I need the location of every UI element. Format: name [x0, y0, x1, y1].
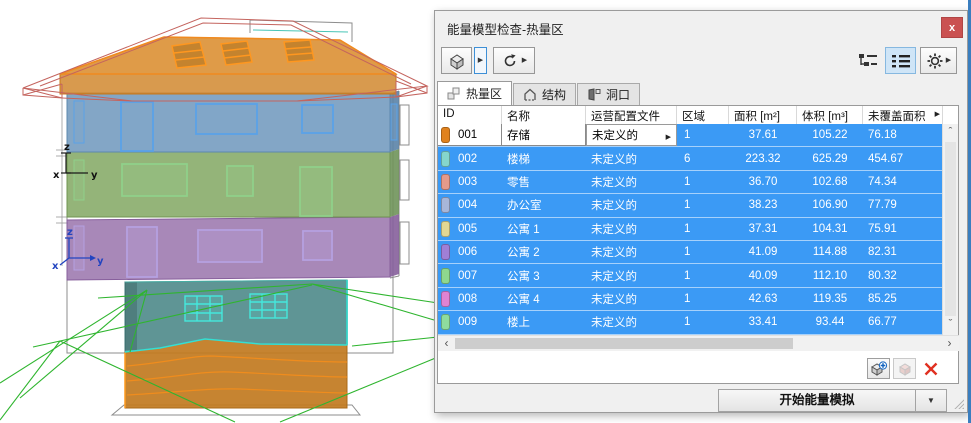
- zone-id: 002: [458, 153, 477, 165]
- zone-id-cell: 009: [438, 311, 502, 333]
- ground-floor-zone: [125, 280, 347, 352]
- zone-count-cell: 1: [677, 218, 729, 240]
- zone-id-cell: 004: [438, 194, 502, 216]
- zone-volume-cell: 119.35: [797, 288, 863, 310]
- zone-color-swatch: [441, 314, 450, 330]
- zone-uncovered-cell: 85.25: [863, 288, 943, 310]
- zone-id: 006: [458, 246, 477, 258]
- screen: z x y z x y 能量模型检查-热量区 x: [0, 0, 971, 423]
- zone-id-cell: 003: [438, 171, 502, 193]
- zone-profile-cell[interactable]: 未定义的 ▶: [586, 194, 677, 216]
- flyout-arrow-icon: ▶: [478, 57, 483, 64]
- zone-count-cell: 1: [677, 171, 729, 193]
- start-simulation-dropdown-button[interactable]: ▼: [916, 389, 947, 412]
- column-header-uncovered-label: 未覆盖面积: [868, 111, 926, 123]
- zone-id-cell: 007: [438, 264, 502, 286]
- settings-button[interactable]: ▶: [920, 47, 957, 74]
- tab-label: 洞口: [606, 86, 630, 103]
- table-header: ID 名称 运营配置文件 区域 面积 [m²] 体积 [m³] 未覆盖面积 ▶: [438, 106, 943, 124]
- thermal-block-table: 001 存储 未定义的 ▶ 1 37.61 105.22 76.18 002 楼…: [438, 124, 943, 335]
- zone-id-cell: 002: [438, 147, 502, 169]
- zone-uncovered-cell: 82.31: [863, 241, 943, 263]
- axis-y-label: y: [97, 256, 104, 267]
- column-header-area[interactable]: 面积 [m²]: [729, 106, 797, 124]
- zone-count-cell: 1: [677, 241, 729, 263]
- start-simulation-group: 开始能量模拟 ▼: [718, 389, 947, 412]
- zone-count-cell: 1: [677, 264, 729, 286]
- zone-volume-cell: 93.44: [797, 311, 863, 333]
- zone-uncovered-cell: 77.79: [863, 194, 943, 216]
- tab-label: 结构: [542, 86, 566, 103]
- zone-uncovered-cell: 75.91: [863, 218, 943, 240]
- zone-uncovered-cell: 80.32: [863, 264, 943, 286]
- zone-color-swatch: [441, 151, 450, 167]
- scroll-down-button[interactable]: ˇ: [943, 319, 958, 334]
- start-energy-simulation-button[interactable]: 开始能量模拟: [718, 389, 916, 412]
- flyout-arrow-icon: ▶: [946, 57, 951, 64]
- list-view-button[interactable]: [885, 47, 916, 74]
- table-row[interactable]: 004 办公室 未定义的 ▶ 1 38.23 106.90 77.79: [438, 194, 943, 217]
- axis-x-label: x: [52, 261, 59, 272]
- show-in-3d-button[interactable]: [441, 47, 472, 74]
- energy-model-review-dialog: 能量模型检查-热量区 x ▶ ▶: [434, 10, 968, 413]
- zone-id-cell: 008: [438, 288, 502, 310]
- zone-volume-cell: 102.68: [797, 171, 863, 193]
- delete-x-icon: [923, 361, 939, 377]
- zone-profile-cell[interactable]: 未定义的 ▶: [586, 147, 677, 169]
- tab-thermal-blocks[interactable]: 热量区: [437, 81, 512, 105]
- dialog-titlebar[interactable]: 能量模型检查-热量区 x: [435, 11, 967, 41]
- zone-id: 004: [458, 199, 477, 211]
- zone-color-swatch: [441, 291, 450, 307]
- zone-area-cell: 33.41: [729, 311, 797, 333]
- floor2-zone: [67, 149, 399, 217]
- zone-profile-cell[interactable]: 未定义的 ▶: [586, 171, 677, 193]
- zone-name: 零售: [507, 174, 530, 190]
- scroll-up-button[interactable]: ˆ: [943, 125, 958, 140]
- zone-name-cell: 公寓 2: [502, 241, 586, 263]
- zone-profile-cell[interactable]: 未定义的 ▶: [586, 218, 677, 240]
- zone-uncovered-cell: 76.18: [863, 124, 943, 146]
- zone-id: 008: [458, 293, 477, 305]
- zone-profile: 未定义的: [591, 197, 637, 213]
- zone-area-cell: 37.61: [729, 124, 797, 146]
- thermal-blocks-panel: ID 名称 运营配置文件 区域 面积 [m²] 体积 [m³] 未覆盖面积 ▶ …: [437, 105, 959, 384]
- zone-volume-cell: 625.29: [797, 147, 863, 169]
- zone-profile: 未定义的: [591, 221, 637, 237]
- table-row[interactable]: 007 公寓 3 未定义的 ▶ 1 40.09 112.10 80.32: [438, 264, 943, 287]
- floor1-zone: [67, 214, 399, 280]
- tab-openings[interactable]: 洞口: [577, 83, 640, 105]
- zone-id: 005: [458, 223, 477, 235]
- roof-teal-line: [253, 30, 348, 32]
- zone-name: 楼梯: [507, 151, 530, 167]
- zone-profile: 未定义的: [592, 127, 638, 143]
- cube-3d-icon: [447, 51, 467, 71]
- column-header-uncovered[interactable]: 未覆盖面积 ▶: [863, 106, 943, 124]
- zone-volume-cell: 105.22: [797, 124, 863, 146]
- column-header-zones[interactable]: 区域: [677, 106, 729, 124]
- zone-profile: 未定义的: [591, 268, 637, 284]
- flyout-arrow-icon: ▶: [522, 57, 527, 64]
- dialog-toolbar: ▶ ▶: [435, 41, 967, 79]
- horizontal-scrollbar[interactable]: ‹ ›: [438, 335, 959, 351]
- add-zone-button[interactable]: [867, 358, 890, 379]
- table-row[interactable]: 002 楼梯 未定义的 ▶ 6 223.32 625.29 454.67: [438, 147, 943, 170]
- zone-name-cell: 公寓 3: [502, 264, 586, 286]
- zone-id: 003: [458, 176, 477, 188]
- zone-name-cell: 存储: [502, 124, 586, 146]
- structure-icon: [523, 88, 537, 101]
- zone-count-cell: 1: [677, 311, 729, 333]
- scroll-right-button[interactable]: ›: [942, 336, 957, 351]
- combo-flyout-icon: ▶: [666, 133, 671, 141]
- zone-area-cell: 37.31: [729, 218, 797, 240]
- zone-name: 公寓 3: [507, 268, 540, 284]
- zone-color-swatch: [441, 197, 450, 213]
- zone-color-swatch: [441, 127, 450, 143]
- zone-profile: 未定义的: [591, 244, 637, 260]
- zone-color-swatch: [441, 268, 450, 284]
- zone-id-cell: 006: [438, 241, 502, 263]
- zone-profile-cell[interactable]: 未定义的 ▶: [586, 264, 677, 286]
- axis-z-label: z: [64, 142, 70, 153]
- zone-name-cell: 办公室: [502, 194, 586, 216]
- zone-name: 公寓 4: [507, 291, 540, 307]
- delete-button[interactable]: [919, 358, 942, 379]
- zone-profile-cell[interactable]: 未定义的 ▶: [586, 241, 677, 263]
- remove-zone-button[interactable]: [893, 358, 916, 379]
- gear-icon: [926, 52, 944, 70]
- zone-area-cell: 38.23: [729, 194, 797, 216]
- building-model: z x y z x y: [0, 0, 440, 423]
- zone-name: 楼上: [507, 314, 530, 330]
- zone-count-cell: 1: [677, 288, 729, 310]
- axis-x-label: x: [53, 170, 60, 181]
- zone-name-cell: 楼梯: [502, 147, 586, 169]
- zone-id: 007: [458, 270, 477, 282]
- zone-profile: 未定义的: [591, 291, 637, 307]
- zone-name-cell: 零售: [502, 171, 586, 193]
- zone-volume-cell: 104.31: [797, 218, 863, 240]
- zone-profile: 未定义的: [591, 174, 637, 190]
- table-row[interactable]: 008 公寓 4 未定义的 ▶ 1 42.63 119.35 85.25: [438, 288, 943, 311]
- column-header-id[interactable]: ID: [438, 106, 502, 124]
- zone-id: 001: [458, 129, 477, 141]
- remove-cube-icon: [897, 361, 913, 377]
- zone-count-cell: 1: [677, 124, 729, 146]
- zone-actions-toolbar: [867, 358, 942, 379]
- zone-profile: 未定义的: [591, 151, 637, 167]
- door-icon: [587, 88, 601, 101]
- zone-name-cell: 楼上: [502, 311, 586, 333]
- list-view-icon: [891, 53, 911, 69]
- zone-uncovered-cell: 74.34: [863, 171, 943, 193]
- resize-grip[interactable]: [954, 399, 964, 409]
- zone-id: 009: [458, 316, 477, 328]
- thermal-blocks-icon: [447, 87, 461, 100]
- zone-uncovered-cell: 454.67: [863, 147, 943, 169]
- zone-volume-cell: 114.88: [797, 241, 863, 263]
- zone-color-swatch: [441, 221, 450, 237]
- table-row[interactable]: 003 零售 未定义的 ▶ 1 36.70 102.68 74.34: [438, 171, 943, 194]
- tree-view-button[interactable]: [854, 47, 882, 74]
- zone-profile-cell[interactable]: 未定义的 ▶: [586, 124, 677, 146]
- model-3d-viewport[interactable]: z x y z x y: [0, 0, 440, 423]
- zone-area-cell: 36.70: [729, 171, 797, 193]
- zone-id-cell: 001: [438, 124, 502, 146]
- zone-volume-cell: 106.90: [797, 194, 863, 216]
- zone-area-cell: 41.09: [729, 241, 797, 263]
- column-header-profile[interactable]: 运营配置文件: [586, 106, 677, 124]
- zone-name: 存储: [507, 127, 530, 143]
- roof-zone: [60, 37, 396, 94]
- zone-area-cell: 42.63: [729, 288, 797, 310]
- zone-name-cell: 公寓 1: [502, 218, 586, 240]
- dialog-title: 能量模型检查-热量区: [447, 19, 564, 38]
- tab-label: 热量区: [466, 85, 502, 102]
- zone-name: 公寓 1: [507, 221, 540, 237]
- zone-uncovered-cell: 66.77: [863, 311, 943, 333]
- more-columns-icon[interactable]: ▶: [935, 110, 940, 118]
- zone-profile-cell[interactable]: 未定义的 ▶: [586, 288, 677, 310]
- zone-profile-cell[interactable]: 未定义的 ▶: [586, 311, 677, 333]
- tree-view-icon: [858, 53, 878, 69]
- zone-count-cell: 6: [677, 147, 729, 169]
- add-cube-icon: [870, 361, 888, 377]
- refresh-button[interactable]: ▶: [493, 47, 535, 74]
- table-row[interactable]: 005 公寓 1 未定义的 ▶ 1 37.31 104.31 75.91: [438, 218, 943, 241]
- axis-z-label: z: [67, 227, 73, 238]
- zone-name: 公寓 2: [507, 244, 540, 260]
- column-header-volume[interactable]: 体积 [m³]: [797, 106, 863, 124]
- scroll-left-button[interactable]: ‹: [439, 336, 454, 351]
- zone-name: 办公室: [507, 197, 542, 213]
- table-row[interactable]: 001 存储 未定义的 ▶ 1 37.61 105.22 76.18: [438, 124, 943, 147]
- zone-name-cell: 公寓 4: [502, 288, 586, 310]
- tab-structures[interactable]: 结构: [513, 83, 576, 105]
- table-row[interactable]: 006 公寓 2 未定义的 ▶ 1 41.09 114.88 82.31: [438, 241, 943, 264]
- zone-profile: 未定义的: [591, 314, 637, 330]
- vertical-scroll-thumb[interactable]: [945, 142, 956, 316]
- axis-y-label: y: [91, 170, 98, 181]
- column-header-name[interactable]: 名称: [502, 106, 586, 124]
- show-in-3d-flyout-button[interactable]: ▶: [474, 47, 487, 74]
- zone-color-swatch: [441, 174, 450, 190]
- zone-volume-cell: 112.10: [797, 264, 863, 286]
- zone-count-cell: 1: [677, 194, 729, 216]
- zone-area-cell: 223.32: [729, 147, 797, 169]
- zone-area-cell: 40.09: [729, 264, 797, 286]
- close-button[interactable]: x: [941, 17, 963, 38]
- tab-bar: 热量区 结构 洞口: [437, 81, 641, 105]
- zone-id-cell: 005: [438, 218, 502, 240]
- basement-zone: [125, 339, 347, 408]
- zone-color-swatch: [441, 244, 450, 260]
- horizontal-scroll-thumb[interactable]: [455, 338, 793, 349]
- vertical-scrollbar[interactable]: ˆ ˇ: [942, 124, 958, 335]
- refresh-icon: [501, 52, 519, 70]
- table-row[interactable]: 009 楼上 未定义的 ▶ 1 33.41 93.44 66.77: [438, 311, 943, 334]
